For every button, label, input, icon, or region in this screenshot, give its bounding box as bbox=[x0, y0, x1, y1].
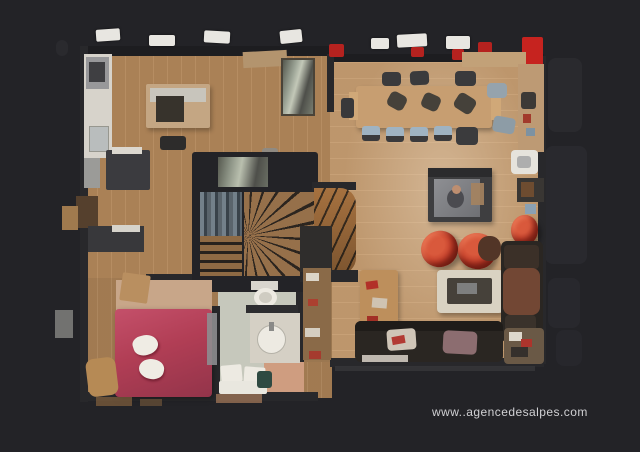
window-sill bbox=[204, 30, 231, 43]
dining-chair bbox=[455, 71, 476, 86]
radiator-strip bbox=[362, 355, 408, 362]
waste-bin bbox=[257, 371, 272, 388]
window-sill bbox=[397, 33, 428, 48]
sink-faucet bbox=[269, 322, 274, 331]
wall-kitchen-dining-divider bbox=[327, 54, 334, 112]
magazine-paper bbox=[372, 297, 388, 308]
bathroom-divider-wall bbox=[246, 305, 298, 313]
window-sill bbox=[446, 36, 470, 49]
entry-nook-glass bbox=[283, 60, 313, 114]
fridge bbox=[84, 158, 100, 188]
dining-chair-blue-seat bbox=[434, 126, 452, 141]
radiator-strip bbox=[112, 147, 142, 154]
scan-ghost-artifact bbox=[545, 146, 587, 264]
window-sill bbox=[149, 35, 175, 46]
red-curtain bbox=[411, 47, 424, 57]
kitchen-sink bbox=[89, 126, 109, 152]
scan-fragment bbox=[335, 366, 535, 371]
dining-chair bbox=[410, 71, 430, 86]
sofa-bottom-backrest bbox=[355, 321, 503, 331]
desk-chair bbox=[521, 92, 536, 109]
scan-ghost-artifact bbox=[548, 278, 580, 328]
kitchen-island-inset bbox=[156, 96, 184, 122]
clutter-red bbox=[521, 339, 532, 347]
fireplace-wood-stack bbox=[471, 183, 484, 205]
sofa-right-cushion bbox=[504, 245, 539, 269]
magazine-red bbox=[366, 280, 379, 290]
coffee-table-decor bbox=[457, 283, 477, 294]
toilet-seat-inner bbox=[259, 292, 272, 303]
shelf-item-white bbox=[305, 328, 320, 337]
dining-chair-blue-seat bbox=[362, 126, 380, 141]
wall-top-kitchen bbox=[80, 46, 338, 56]
dining-chair-blue-seat bbox=[386, 127, 404, 142]
clutter-dark bbox=[511, 347, 528, 357]
shelf-item-white bbox=[306, 273, 319, 281]
kitchen-stool bbox=[160, 136, 186, 150]
kitchen-appliance-top bbox=[89, 62, 105, 82]
dining-chair bbox=[456, 127, 478, 145]
window-sill bbox=[371, 38, 389, 49]
scan-fragment bbox=[140, 399, 162, 406]
dark-shelf-item bbox=[521, 182, 534, 197]
decor-blue bbox=[525, 204, 536, 214]
stair-treads-lower-flight bbox=[200, 236, 242, 276]
dining-chair bbox=[382, 72, 401, 86]
watermark-url: www..agencedesalpes.com bbox=[432, 405, 588, 419]
wood-wedge bbox=[85, 356, 119, 397]
pillow-mauve bbox=[442, 330, 477, 355]
open-door bbox=[119, 272, 151, 304]
shelf-item-red bbox=[308, 299, 318, 306]
shelf-unit-left bbox=[303, 268, 331, 360]
floorplan-viewport: www..agencedesalpes.com bbox=[0, 0, 640, 452]
stair-glass-balustrade bbox=[200, 192, 242, 236]
scan-ghost-artifact bbox=[556, 330, 582, 366]
top-desk-strip bbox=[462, 52, 526, 67]
decor-blue bbox=[526, 128, 535, 136]
unscanned-block bbox=[106, 150, 150, 190]
person-figure-head bbox=[452, 185, 461, 194]
scan-ghost-artifact bbox=[56, 40, 68, 56]
stair-dark-corner bbox=[300, 226, 332, 272]
scan-fragment bbox=[55, 310, 73, 338]
window-sill bbox=[96, 28, 121, 42]
dining-chair bbox=[341, 98, 354, 118]
pouf bbox=[478, 236, 501, 261]
white-chair-seat bbox=[517, 156, 531, 168]
dining-chair-blue-seat bbox=[410, 127, 428, 142]
scan-fragment bbox=[216, 394, 262, 403]
radiator-strip bbox=[112, 225, 140, 232]
scan-fragment bbox=[96, 397, 132, 406]
wood-ledge bbox=[62, 206, 78, 230]
sofa-right-blanket bbox=[503, 268, 540, 315]
stairwell-opening bbox=[218, 157, 268, 187]
window-sill bbox=[279, 29, 302, 44]
fireplace-lip bbox=[428, 168, 492, 177]
scan-ghost-artifact bbox=[548, 58, 582, 132]
red-curtain bbox=[329, 44, 344, 57]
shelf-item-red bbox=[309, 351, 321, 359]
bed bbox=[115, 309, 212, 397]
cabinet-dark-wood bbox=[76, 196, 98, 228]
bed-headboard bbox=[207, 313, 217, 365]
dining-chair-gray bbox=[487, 83, 507, 98]
decor-red bbox=[523, 114, 531, 123]
